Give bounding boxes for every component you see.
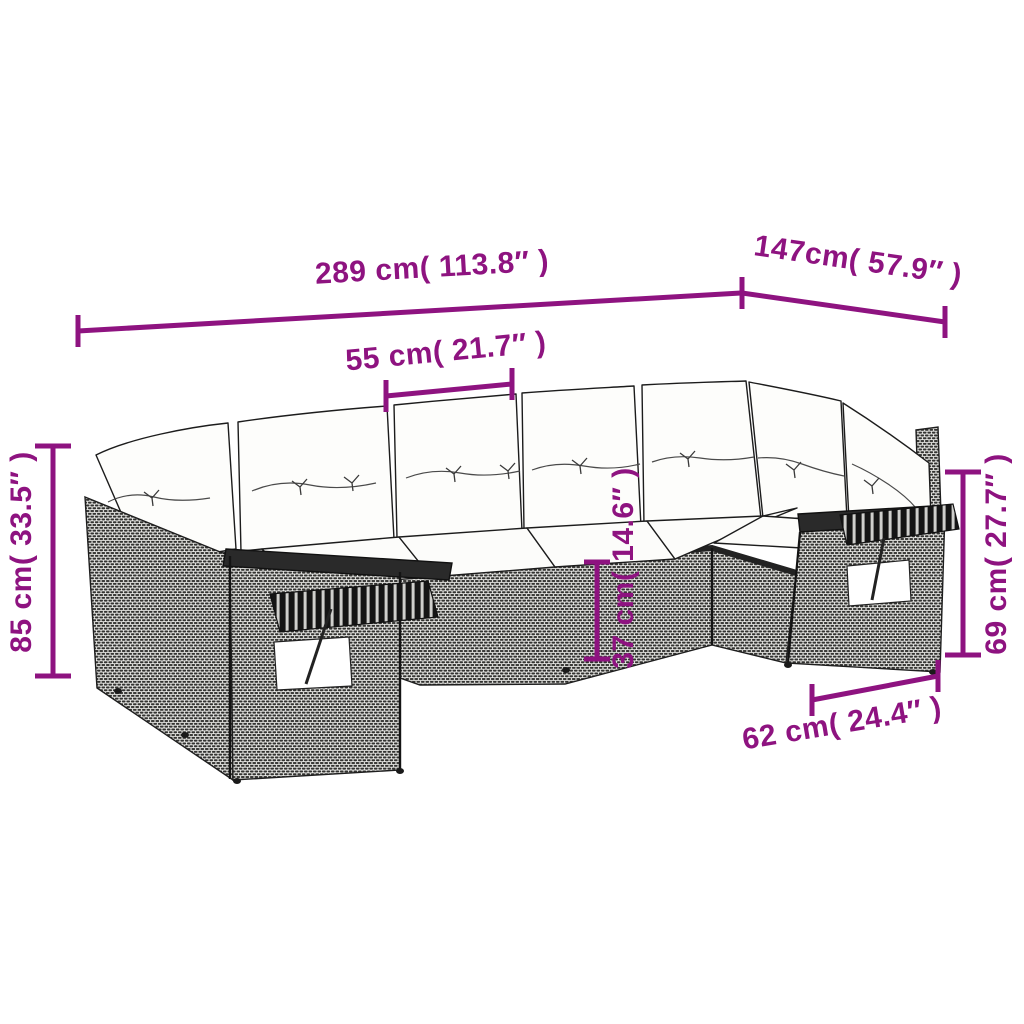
- sofa-illustration: [0, 0, 1024, 1024]
- dimension-line-total-width: [78, 277, 742, 347]
- dimension-label-armrest-height: 69 cm( 27.7″ ): [982, 453, 1012, 654]
- dimension-label-total-height: 85 cm( 33.5″ ): [7, 451, 37, 652]
- dimension-line-right-depth: [742, 293, 945, 338]
- dimension-line-total-height: [35, 446, 71, 676]
- dimension-line-armrest-height: [945, 472, 981, 655]
- dimension-label-seat-height: 37 cm( 14.6″ ): [609, 467, 639, 668]
- product-dimension-diagram: 289 cm( 113.8″ ) 147cm( 57.9″ ) 55 cm( 2…: [0, 0, 1024, 1024]
